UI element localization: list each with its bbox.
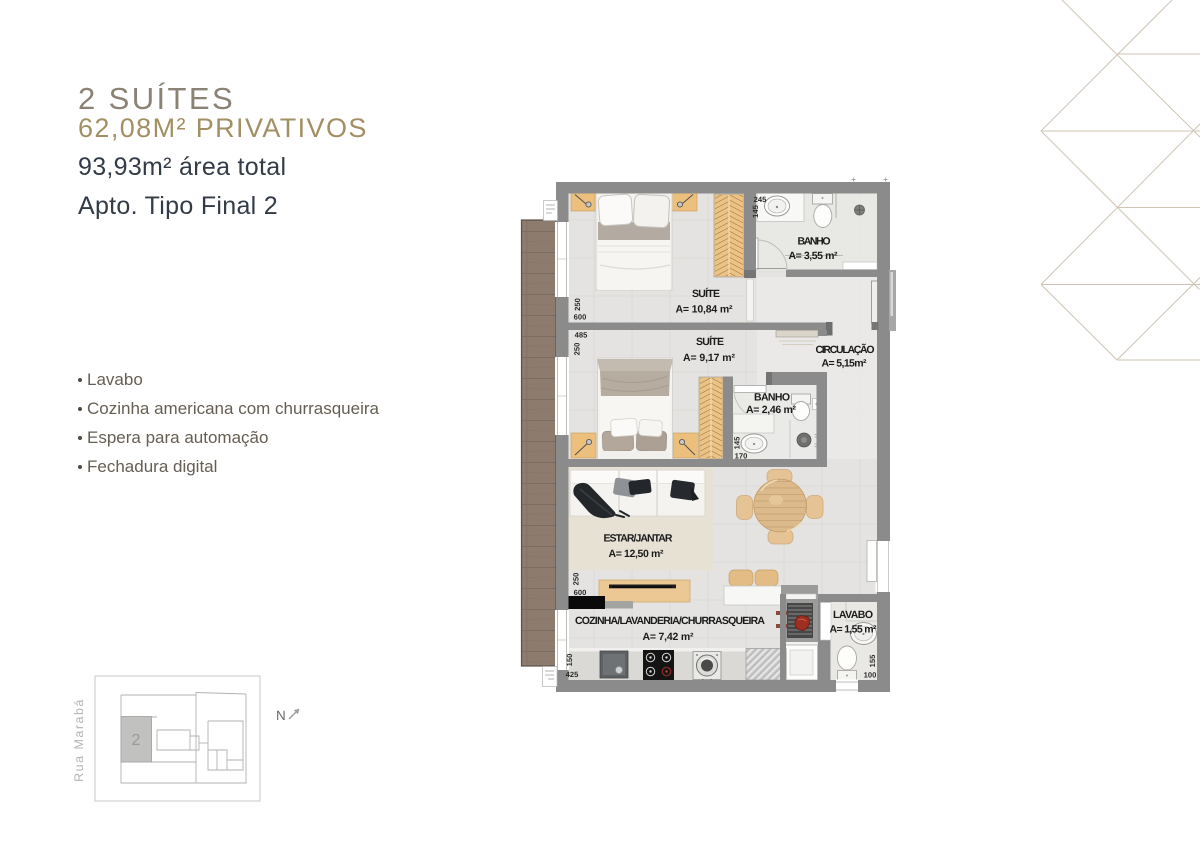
svg-text:LAVABO: LAVABO bbox=[833, 609, 873, 621]
svg-text:SUÍTE: SUÍTE bbox=[692, 287, 720, 300]
svg-text:A= 2,46 m²: A= 2,46 m² bbox=[746, 404, 797, 416]
svg-text:155: 155 bbox=[868, 654, 877, 667]
svg-text:425: 425 bbox=[566, 670, 579, 679]
svg-text:A= 7,42 m²: A= 7,42 m² bbox=[643, 631, 695, 643]
svg-text:250: 250 bbox=[572, 573, 581, 586]
svg-text:250: 250 bbox=[573, 298, 582, 311]
svg-text:170: 170 bbox=[735, 452, 748, 461]
svg-text:ESTAR/JANTAR: ESTAR/JANTAR bbox=[604, 533, 673, 545]
svg-text:100: 100 bbox=[864, 671, 877, 680]
svg-text:A= 1,55 m²: A= 1,55 m² bbox=[830, 624, 878, 636]
svg-text:Rua Marabá: Rua Marabá bbox=[72, 698, 86, 782]
svg-text:COZINHA/LAVANDERIA/CHURRASQUEI: COZINHA/LAVANDERIA/CHURRASQUEIRA bbox=[575, 615, 765, 627]
svg-text:A= 12,50 m²: A= 12,50 m² bbox=[609, 548, 665, 560]
svg-text:600: 600 bbox=[574, 588, 587, 597]
svg-text:SUÍTE: SUÍTE bbox=[696, 335, 724, 348]
svg-text:A= 5,15m²: A= 5,15m² bbox=[822, 358, 868, 370]
svg-text:N: N bbox=[276, 708, 286, 723]
svg-text:A= 3,55 m²: A= 3,55 m² bbox=[789, 250, 839, 262]
svg-text:250: 250 bbox=[573, 343, 582, 356]
svg-text:145: 145 bbox=[733, 436, 742, 449]
svg-text:A= 9,17 m²: A= 9,17 m² bbox=[683, 352, 736, 364]
svg-text:145: 145 bbox=[751, 204, 760, 217]
svg-text:A= 10,84 m²: A= 10,84 m² bbox=[676, 304, 734, 316]
svg-text:600: 600 bbox=[574, 313, 587, 322]
svg-text:150: 150 bbox=[565, 654, 574, 667]
svg-text:2: 2 bbox=[132, 732, 141, 749]
svg-text:485: 485 bbox=[575, 331, 588, 340]
svg-text:BANHO: BANHO bbox=[798, 236, 831, 248]
svg-text:BANHO: BANHO bbox=[754, 392, 790, 404]
svg-text:CIRCULAÇÃO: CIRCULAÇÃO bbox=[816, 343, 875, 356]
svg-text:245: 245 bbox=[754, 195, 767, 204]
